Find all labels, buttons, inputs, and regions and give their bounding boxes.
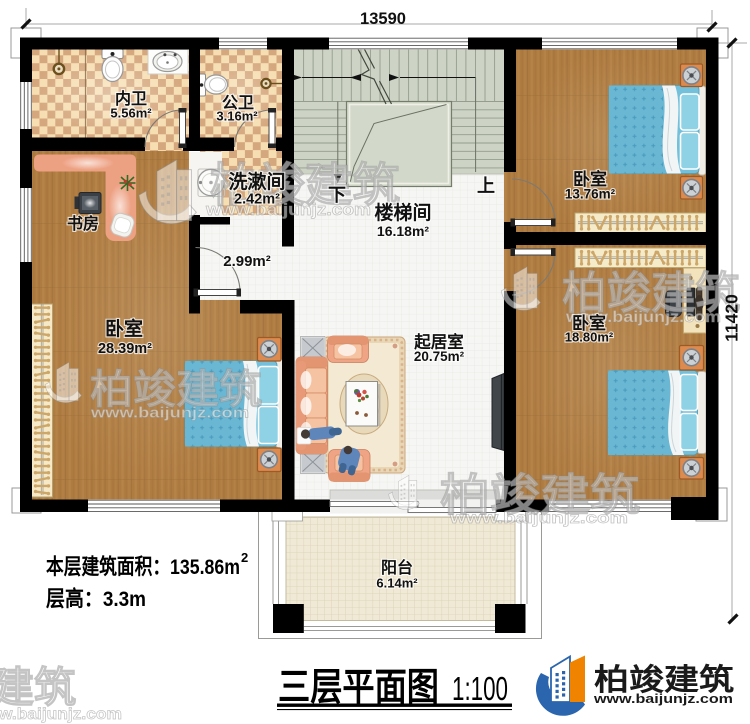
svg-text:楼梯间: 楼梯间 (374, 201, 431, 224)
svg-text:16.18m²: 16.18m² (377, 223, 429, 239)
svg-text:层高：3.3m: 层高：3.3m (46, 586, 146, 611)
svg-text:2.42m²: 2.42m² (234, 192, 280, 208)
svg-text:卧室: 卧室 (105, 317, 143, 340)
svg-text:www.baijunjz.com: www.baijunjz.com (90, 405, 249, 422)
svg-text:www.baijunjz.com: www.baijunjz.com (0, 706, 122, 723)
svg-text:28.39m²: 28.39m² (98, 341, 152, 357)
svg-text:2.99m²: 2.99m² (223, 253, 271, 270)
svg-text:2: 2 (241, 550, 248, 565)
svg-text:20.75m²: 20.75m² (414, 349, 465, 364)
svg-text:洗漱间: 洗漱间 (228, 170, 285, 193)
svg-text:1:100: 1:100 (452, 670, 508, 707)
svg-text:www.baijunjz.com: www.baijunjz.com (593, 691, 733, 706)
svg-text:上: 上 (477, 176, 495, 196)
svg-text:书房: 书房 (67, 214, 99, 233)
svg-text:5.56m²: 5.56m² (110, 106, 152, 121)
svg-text:13.76m²: 13.76m² (565, 187, 616, 202)
svg-text:11420: 11420 (722, 294, 742, 342)
svg-text:18.80m²: 18.80m² (565, 330, 614, 345)
svg-text:3.16m²: 3.16m² (216, 109, 258, 124)
svg-text:建筑: 建筑 (0, 664, 76, 711)
svg-text:13590: 13590 (360, 10, 406, 28)
svg-text:www.baijunjz.com: www.baijunjz.com (205, 200, 371, 219)
svg-text:本层建筑面积：135.86m: 本层建筑面积：135.86m (46, 554, 240, 579)
svg-text:下: 下 (328, 185, 346, 205)
svg-text:www.baijunjz.com: www.baijunjz.com (449, 510, 628, 527)
svg-text:6.14m²: 6.14m² (376, 576, 418, 591)
svg-text:阳台: 阳台 (381, 558, 413, 577)
svg-text:三层平面图: 三层平面图 (278, 667, 439, 709)
